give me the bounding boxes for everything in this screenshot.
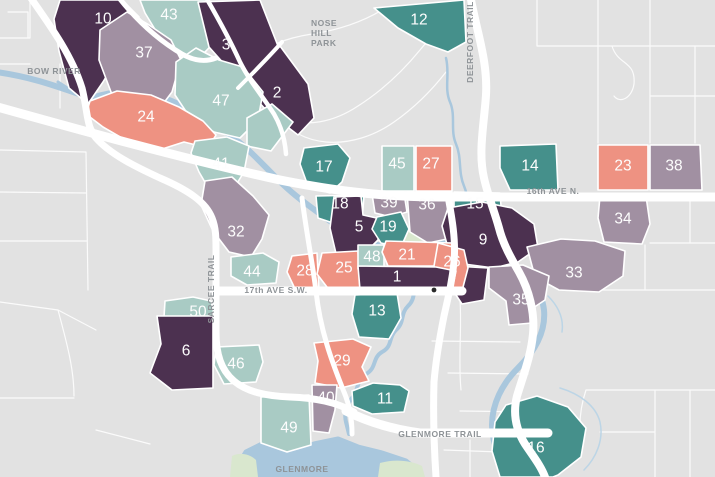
district-label-39: 39: [380, 195, 397, 212]
district-label-6: 6: [182, 343, 191, 360]
district-label-36: 36: [418, 197, 435, 214]
district-label-10: 10: [94, 11, 112, 28]
district-label-29: 29: [333, 353, 350, 370]
sixteenth-ave-label: 16th AVE N.: [527, 186, 580, 196]
district-label-11: 11: [377, 391, 393, 408]
nose-hill-park-label-line3: PARK: [311, 38, 337, 48]
district-label-16: 16: [527, 440, 544, 457]
map-marker-dot: [432, 288, 437, 293]
seventeenth-ave-label: 17th AVE S.W.: [244, 285, 307, 295]
district-region-1[interactable]: [358, 266, 456, 290]
district-label-35: 35: [512, 292, 529, 309]
district-label-21: 21: [398, 247, 415, 264]
district-label-44: 44: [243, 264, 261, 281]
district-label-13: 13: [368, 303, 385, 320]
district-label-15: 15: [466, 196, 483, 213]
city-districts-map: BOW RIVER NOSE HILL PARK DEERFOOT TRAIL …: [0, 0, 715, 477]
nose-hill-park-label-line2: HILL: [311, 28, 332, 38]
deerfoot-trail-label: DEERFOOT TRAIL: [465, 1, 475, 83]
map-canvas: BOW RIVER NOSE HILL PARK DEERFOOT TRAIL …: [0, 0, 715, 477]
district-label-2: 2: [273, 85, 282, 102]
district-label-46: 46: [227, 356, 244, 373]
district-label-43: 43: [160, 7, 177, 24]
district-label-38: 38: [665, 158, 682, 175]
bow-river-label: BOW RIVER: [27, 66, 81, 76]
district-label-48: 48: [363, 249, 380, 266]
district-label-26: 26: [443, 254, 460, 271]
glenmore-trail-label: GLENMORE TRAIL: [398, 429, 482, 439]
district-label-41: 41: [212, 156, 229, 173]
district-label-27: 27: [422, 156, 439, 173]
district-label-3: 3: [222, 37, 231, 54]
district-label-25: 25: [335, 260, 352, 277]
district-label-33: 33: [565, 265, 582, 282]
district-label-32: 32: [227, 224, 244, 241]
district-label-17: 17: [315, 159, 332, 176]
district-label-12: 12: [410, 12, 427, 29]
district-label-49: 49: [280, 420, 297, 437]
district-label-40: 40: [317, 390, 335, 407]
district-label-18: 18: [331, 196, 348, 213]
district-label-47: 47: [212, 93, 229, 110]
district-label-24: 24: [137, 109, 155, 126]
district-label-1: 1: [393, 269, 402, 286]
district-label-37: 37: [135, 45, 152, 62]
district-label-23: 23: [614, 158, 631, 175]
nose-hill-park-label-line1: NOSE: [311, 18, 337, 28]
district-label-50: 50: [189, 304, 207, 321]
glenmore-label: GLENMORE: [275, 464, 328, 474]
district-label-14: 14: [521, 158, 539, 175]
district-label-34: 34: [614, 211, 632, 228]
sarcee-trail-label: SARCEE TRAIL: [206, 255, 216, 324]
district-label-45: 45: [388, 156, 405, 173]
district-label-28: 28: [296, 263, 313, 280]
district-label-9: 9: [479, 232, 488, 249]
district-label-5: 5: [355, 219, 364, 236]
district-label-19: 19: [379, 219, 396, 236]
